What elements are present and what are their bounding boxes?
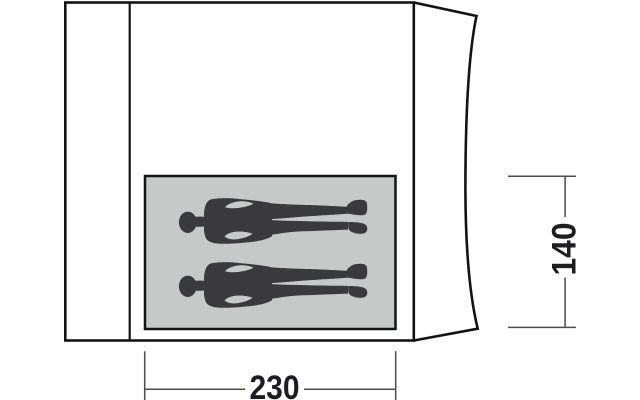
svg-text:230: 230 (250, 369, 300, 400)
svg-text:140: 140 (546, 223, 584, 276)
